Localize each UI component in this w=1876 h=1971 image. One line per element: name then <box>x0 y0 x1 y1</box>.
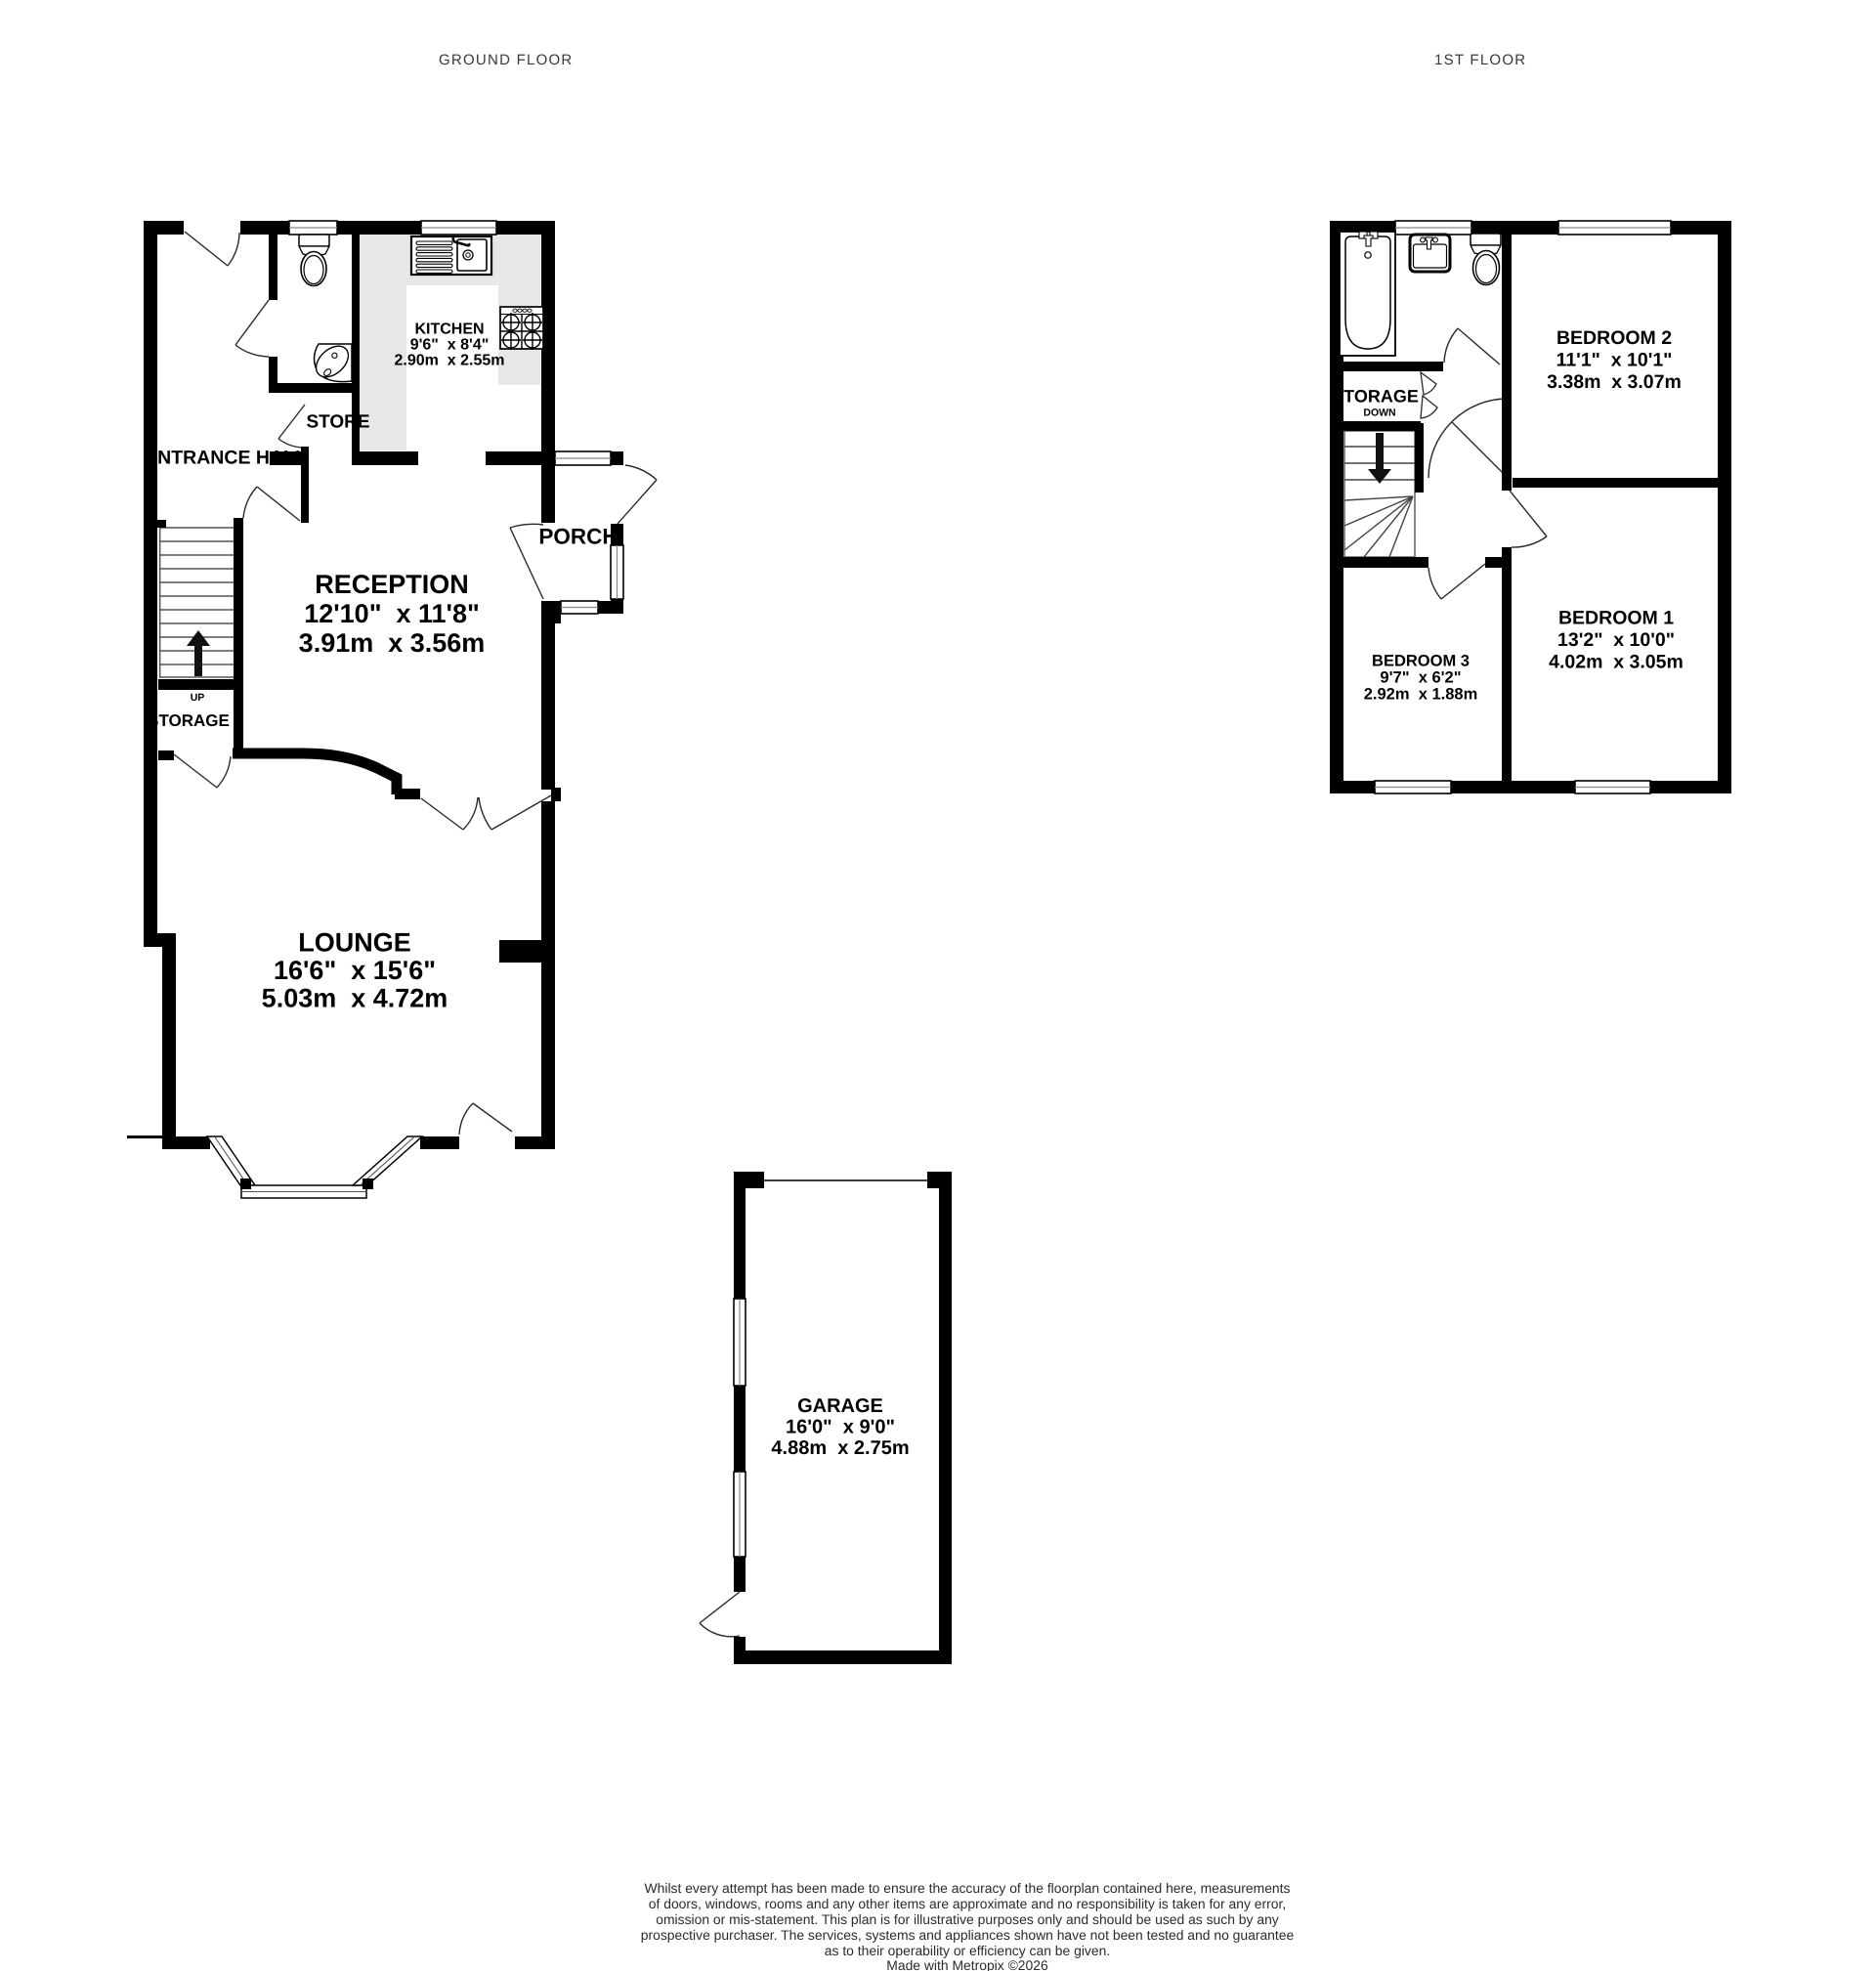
svg-text:13'2" x 10'0": 13'2" x 10'0" <box>1557 629 1675 651</box>
svg-text:STORAGE: STORAGE <box>148 711 230 730</box>
svg-text:3.38m x 3.07m: 3.38m x 3.07m <box>1547 371 1682 393</box>
svg-text:Made with Metropix ©2026: Made with Metropix ©2026 <box>886 1957 1048 1971</box>
svg-text:as to their operability or eff: as to their operability or efficiency ca… <box>825 1943 1110 1958</box>
svg-text:4.88m x 2.75m: 4.88m x 2.75m <box>771 1437 909 1459</box>
svg-text:GROUND FLOOR: GROUND FLOOR <box>439 52 574 68</box>
svg-text:4.02m x 3.05m: 4.02m x 3.05m <box>1549 652 1684 673</box>
svg-text:BEDROOM 2: BEDROOM 2 <box>1556 327 1672 349</box>
svg-text:16'0" x 9'0": 16'0" x 9'0" <box>786 1417 895 1438</box>
svg-text:STORAGE: STORAGE <box>1332 387 1419 407</box>
svg-text:UP: UP <box>191 692 205 704</box>
svg-text:12'10" x 11'8": 12'10" x 11'8" <box>304 599 480 628</box>
svg-text:STORE: STORE <box>306 412 369 433</box>
svg-text:LOUNGE: LOUNGE <box>298 928 411 958</box>
svg-text:9'6" x 8'4": 9'6" x 8'4" <box>410 337 490 354</box>
svg-text:GARAGE: GARAGE <box>797 1395 883 1417</box>
svg-text:DOWN: DOWN <box>1363 407 1395 419</box>
svg-text:3.91m x 3.56m: 3.91m x 3.56m <box>299 628 486 658</box>
svg-text:2.92m x 1.88m: 2.92m x 1.88m <box>1364 686 1478 704</box>
svg-text:RECEPTION: RECEPTION <box>315 570 469 599</box>
svg-text:of doors, windows, rooms and a: of doors, windows, rooms and any other i… <box>649 1896 1286 1911</box>
svg-text:BEDROOM 3: BEDROOM 3 <box>1372 653 1470 670</box>
svg-text:Whilst every attempt has been: Whilst every attempt has been made to en… <box>645 1880 1291 1896</box>
svg-text:PORCH: PORCH <box>538 525 618 549</box>
svg-text:KITCHEN: KITCHEN <box>414 321 484 338</box>
svg-text:omission or mis-statement. Thi: omission or mis-statement. This plan is … <box>656 1911 1279 1927</box>
svg-text:2.90m x 2.55m: 2.90m x 2.55m <box>395 353 505 369</box>
svg-text:BEDROOM 1: BEDROOM 1 <box>1558 608 1674 629</box>
svg-text:1ST FLOOR: 1ST FLOOR <box>1434 52 1526 68</box>
svg-text:11'1" x 10'1": 11'1" x 10'1" <box>1556 350 1673 371</box>
svg-text:5.03m x 4.72m: 5.03m x 4.72m <box>262 984 448 1013</box>
svg-text:9'7" x 6'2": 9'7" x 6'2" <box>1380 669 1461 687</box>
svg-text:prospective purchaser. The ser: prospective purchaser. The services, sys… <box>641 1927 1295 1943</box>
svg-text:16'6" x 15'6": 16'6" x 15'6" <box>274 956 436 985</box>
